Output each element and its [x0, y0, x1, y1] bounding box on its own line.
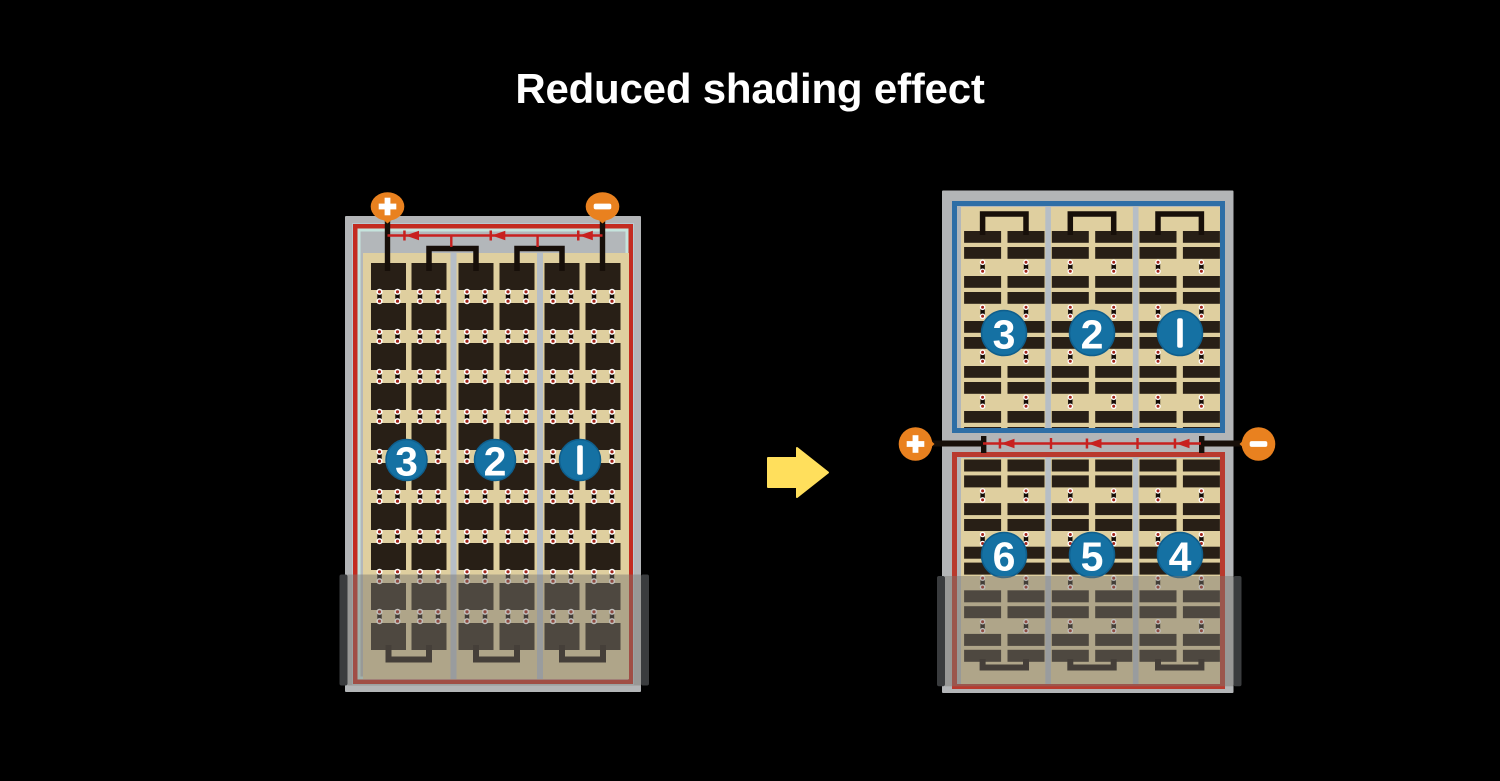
svg-text:5: 5 [1081, 534, 1104, 580]
svg-text:3: 3 [395, 439, 418, 485]
svg-text:3: 3 [993, 312, 1016, 358]
svg-text:4: 4 [1169, 534, 1192, 580]
svg-text:6: 6 [993, 534, 1016, 580]
svg-text:2: 2 [1081, 312, 1104, 358]
svg-text:2: 2 [484, 439, 507, 485]
